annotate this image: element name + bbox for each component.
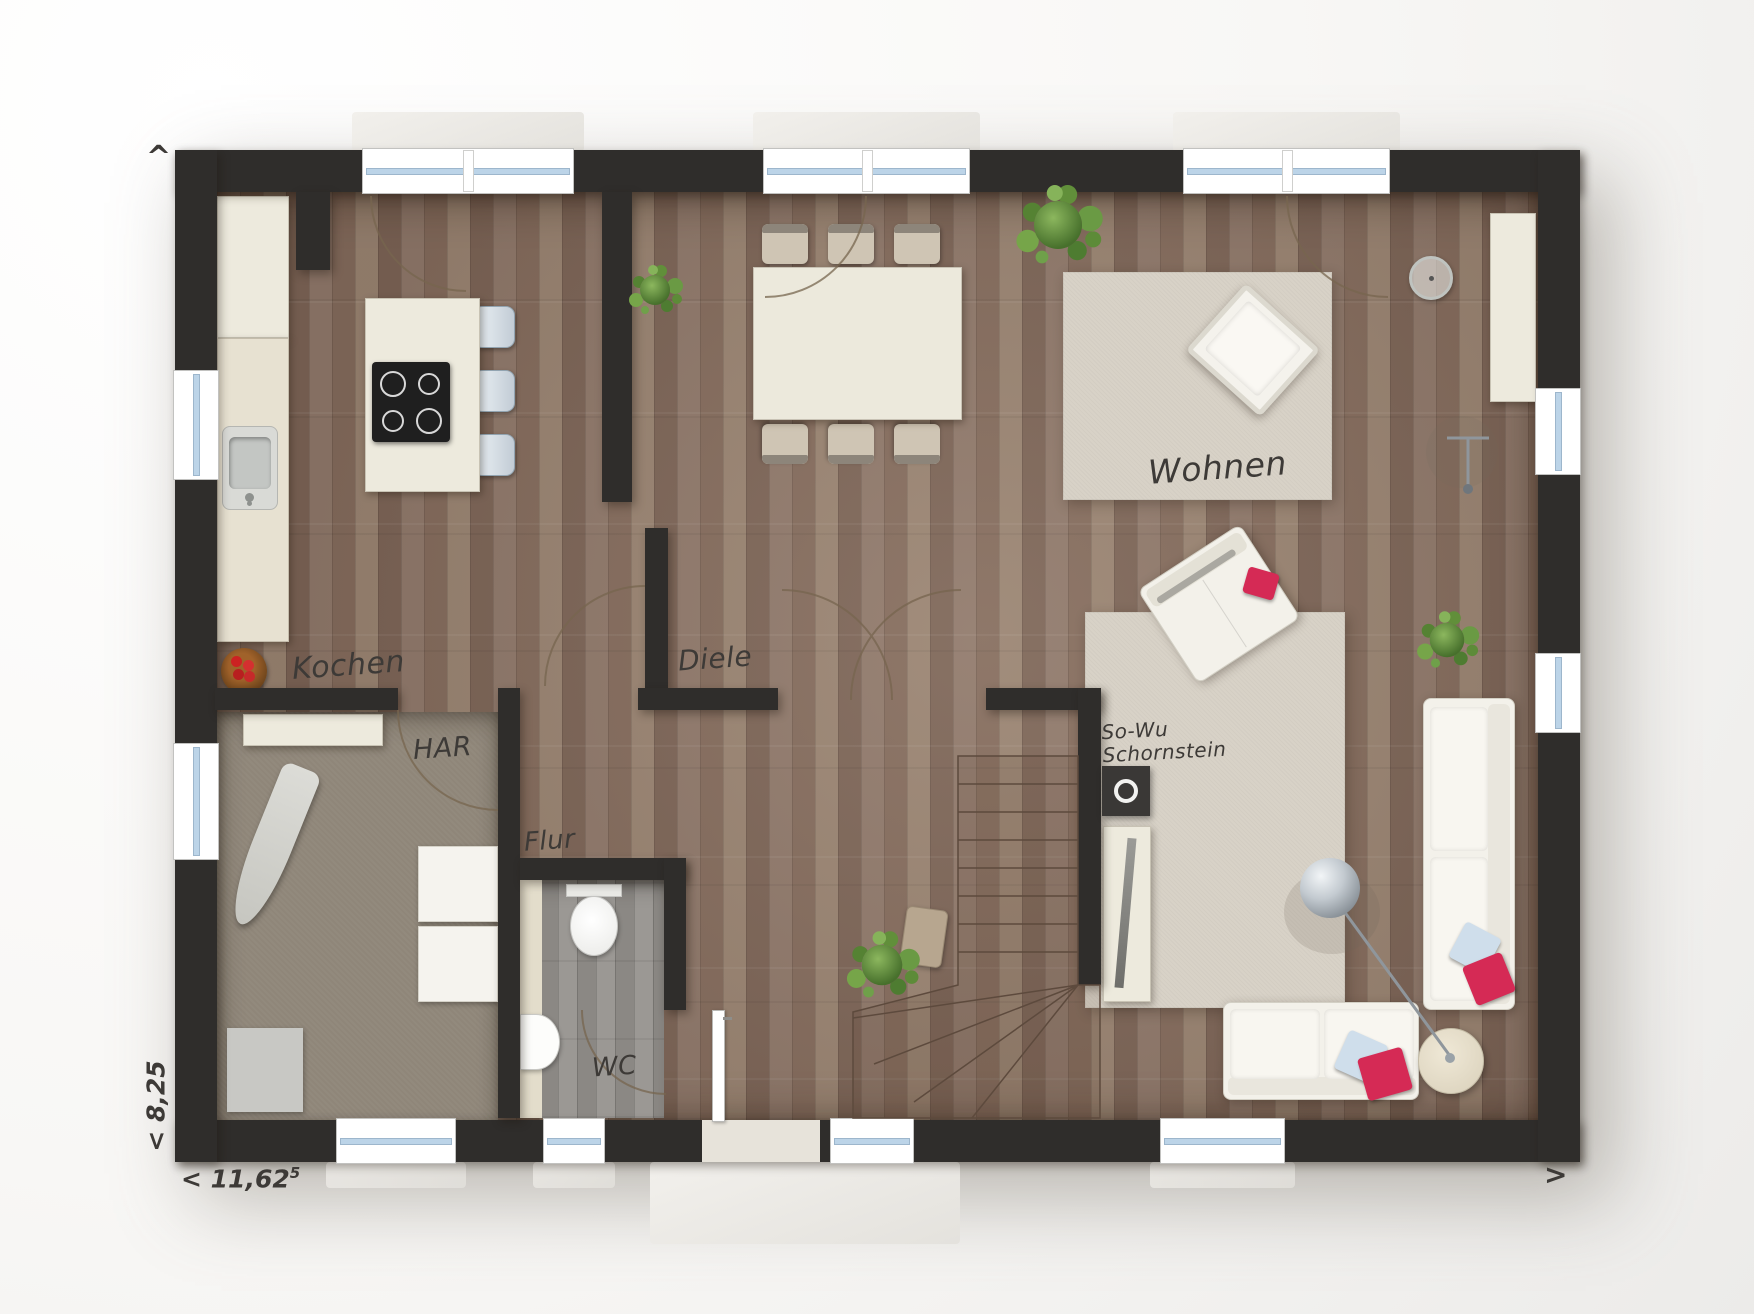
sofa-seat-cushion bbox=[1230, 1009, 1320, 1079]
dining-chair bbox=[828, 424, 874, 464]
terrace-pad-2 bbox=[753, 112, 980, 152]
window-wohnen-right bbox=[1535, 388, 1581, 475]
hall-sideboard bbox=[1103, 826, 1151, 1002]
terrace-door-wohnen bbox=[1183, 148, 1390, 194]
mullion bbox=[463, 150, 474, 192]
wall-wc-top-runner bbox=[638, 688, 778, 710]
terrace-door-dining bbox=[763, 148, 970, 194]
glazing bbox=[1164, 1138, 1281, 1145]
cooktop bbox=[372, 362, 450, 442]
plant-stairs bbox=[862, 945, 903, 986]
chimney-flue-icon bbox=[1114, 779, 1138, 803]
window-har-bottom bbox=[336, 1118, 456, 1164]
dining-chair bbox=[894, 224, 940, 264]
window-pad-1 bbox=[326, 1162, 466, 1188]
glazing bbox=[340, 1138, 452, 1145]
washing-machine bbox=[418, 846, 498, 922]
floor-plan-canvas: Kochen Diele Flur HAR WC Wohnen So-Wu Sc… bbox=[0, 0, 1754, 1314]
terrace-pad-1 bbox=[352, 112, 584, 152]
entry-door-leaf bbox=[712, 1010, 725, 1122]
door-handle-icon bbox=[723, 1017, 732, 1020]
plant-pot bbox=[899, 905, 949, 968]
har-shelf bbox=[243, 714, 383, 746]
sideboard-right-wall bbox=[1490, 213, 1536, 402]
glazing bbox=[1555, 657, 1562, 729]
dim-width-label: < 11,625 bbox=[181, 1164, 300, 1193]
fruit-icon bbox=[231, 656, 242, 667]
room-label-har: HAR bbox=[412, 731, 473, 766]
dim-depth-text: < 8,25 bbox=[142, 1060, 171, 1151]
window-wc-bottom bbox=[543, 1118, 605, 1164]
dim-arrow-top: ^ bbox=[146, 140, 171, 175]
dining-table bbox=[753, 267, 962, 420]
wall-diele-stub bbox=[645, 528, 668, 688]
mullion bbox=[862, 150, 873, 192]
window-kitchen-left bbox=[173, 370, 219, 480]
window-pad-3 bbox=[1150, 1162, 1295, 1188]
burner-icon bbox=[416, 408, 442, 434]
entry-walkway bbox=[650, 1162, 960, 1244]
glass-side-table bbox=[1409, 256, 1453, 300]
wall-wc-north bbox=[520, 858, 686, 880]
kitchen-sink bbox=[222, 426, 278, 510]
dim-width-sup: 5 bbox=[290, 1164, 300, 1182]
dining-chair bbox=[828, 224, 874, 264]
mullion bbox=[1282, 150, 1293, 192]
chimney bbox=[1102, 766, 1150, 816]
glazing bbox=[547, 1138, 601, 1145]
window-seating-right bbox=[1535, 653, 1581, 733]
burner-icon bbox=[380, 371, 406, 397]
kitchen-tall-cabinet bbox=[217, 196, 289, 338]
room-label-wc: WC bbox=[591, 1050, 638, 1083]
dining-chair bbox=[762, 224, 808, 264]
label-chimney: So-Wu Schornstein bbox=[1101, 715, 1227, 767]
dining-chair bbox=[762, 424, 808, 464]
toilet-bowl bbox=[570, 896, 618, 956]
room-label-diele: Diele bbox=[677, 639, 753, 677]
wall-wc-east bbox=[664, 858, 686, 1010]
terrace-door-kitchen bbox=[362, 148, 574, 194]
glazing bbox=[193, 374, 200, 476]
storage-box bbox=[227, 1028, 303, 1112]
sofa-seat-cushion bbox=[1430, 707, 1488, 851]
sink-bowl bbox=[229, 437, 271, 489]
burner-icon bbox=[418, 373, 440, 395]
room-label-flur: Flur bbox=[523, 824, 576, 858]
wall-kochen-har bbox=[215, 688, 398, 710]
chair-back bbox=[894, 455, 940, 464]
chair-back bbox=[762, 224, 808, 233]
dim-width-text: < 11,62 bbox=[181, 1164, 290, 1193]
window-pad-2 bbox=[533, 1162, 615, 1188]
chair-back bbox=[762, 455, 808, 464]
terrace-pad-3 bbox=[1173, 112, 1400, 152]
burner-icon bbox=[382, 410, 404, 432]
wall-kitchen-dining bbox=[602, 192, 632, 502]
plant-seating bbox=[1430, 623, 1465, 658]
wall-stub-kitchen bbox=[296, 192, 330, 270]
round-side-table bbox=[1418, 1028, 1484, 1094]
glazing bbox=[193, 747, 200, 856]
chair-back bbox=[828, 455, 874, 464]
glazing bbox=[1555, 392, 1562, 471]
chair-back bbox=[828, 224, 874, 233]
wall-stair-east bbox=[1078, 688, 1101, 985]
seat-seam bbox=[1202, 580, 1246, 648]
toilet bbox=[566, 884, 622, 960]
glazing bbox=[834, 1138, 910, 1145]
dryer bbox=[418, 926, 498, 1002]
chair-back bbox=[894, 224, 940, 233]
entry-threshold bbox=[702, 1120, 820, 1162]
wc-floor-strip bbox=[520, 880, 542, 1118]
dining-chair bbox=[894, 424, 940, 464]
dim-depth-label: < 8,25 bbox=[142, 1060, 171, 1151]
wall-left bbox=[175, 150, 217, 1162]
table-center-dot bbox=[1429, 276, 1434, 281]
window-har-left bbox=[173, 743, 219, 860]
sideboard-object bbox=[1114, 838, 1136, 988]
plant-dining bbox=[640, 275, 670, 305]
window-seating-bottom bbox=[1160, 1118, 1285, 1164]
wall-har-east bbox=[498, 688, 520, 1118]
entry-sidelight bbox=[830, 1118, 914, 1164]
dim-arrow-right: > bbox=[1544, 1158, 1567, 1191]
sink-faucet-icon bbox=[245, 493, 254, 502]
plant-large-top bbox=[1034, 201, 1082, 249]
